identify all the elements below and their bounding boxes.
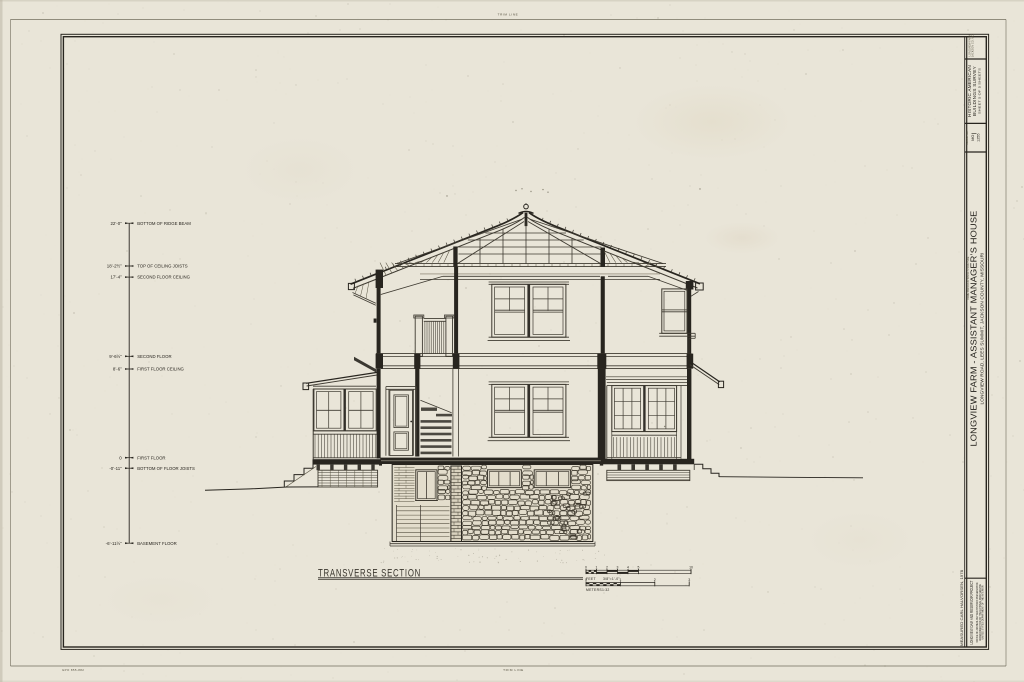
svg-text:BUILDINGS SURVEY: BUILDINGS SURVEY bbox=[972, 66, 977, 116]
svg-text:UNITED STATES DEPARTMENT OF TH: UNITED STATES DEPARTMENT OF THE INTERIOR bbox=[982, 585, 985, 639]
svg-text:TRIM LINE: TRIM LINE bbox=[503, 668, 524, 672]
svg-text:8’-6”: 8’-6” bbox=[113, 367, 122, 372]
svg-text:1255: 1255 bbox=[976, 133, 980, 141]
svg-text:1: 1 bbox=[619, 578, 621, 582]
svg-text:2: 2 bbox=[606, 565, 608, 569]
svg-text:LONGVIEW ROAD, LEES SUMMIT, JA: LONGVIEW ROAD, LEES SUMMIT, JACKSON COUN… bbox=[979, 253, 984, 405]
svg-text:3: 3 bbox=[617, 565, 619, 569]
svg-text:SECOND FLOOR CEILING: SECOND FLOOR CEILING bbox=[137, 275, 190, 280]
svg-text:BOTTOM OF RIDGE BEAM: BOTTOM OF RIDGE BEAM bbox=[137, 221, 191, 226]
svg-text:FIRST FLOOR CEILING: FIRST FLOOR CEILING bbox=[137, 367, 184, 372]
svg-text:10: 10 bbox=[689, 565, 693, 569]
svg-text:SHEET 5 OF 5 SHEETS: SHEET 5 OF 5 SHEETS bbox=[978, 68, 982, 114]
svg-text:LONGVIEW FARM - ASSISTANT MANA: LONGVIEW FARM - ASSISTANT MANAGER’S HOUS… bbox=[969, 210, 979, 446]
svg-text:18’-2½”: 18’-2½” bbox=[107, 264, 122, 269]
svg-text:1:32: 1:32 bbox=[602, 588, 609, 592]
svg-text:0: 0 bbox=[585, 565, 587, 569]
svg-text:-0’-11”: -0’-11” bbox=[109, 466, 122, 471]
svg-text:BASEMENT FLOOR: BASEMENT FLOOR bbox=[137, 541, 177, 546]
svg-text:METERS: METERS bbox=[586, 588, 602, 592]
svg-text:4: 4 bbox=[627, 565, 629, 569]
svg-text:JACKSON CO. MO.: JACKSON CO. MO. bbox=[971, 34, 975, 57]
svg-text:UNDER DIRECTION OF THE NATIONA: UNDER DIRECTION OF THE NATIONAL PARK SER… bbox=[979, 584, 982, 641]
svg-text:9’-6½”: 9’-6½” bbox=[109, 354, 122, 359]
svg-text:MO: MO bbox=[971, 135, 975, 141]
svg-text:GPO 855-882: GPO 855-882 bbox=[62, 668, 84, 672]
svg-text:0: 0 bbox=[585, 578, 587, 582]
svg-text:FIRST FLOOR: FIRST FLOOR bbox=[137, 455, 165, 460]
svg-text:5: 5 bbox=[638, 565, 640, 569]
svg-text:LONGVIEW DAM AND RESERVOIR PRO: LONGVIEW DAM AND RESERVOIR PROJECT bbox=[969, 580, 974, 644]
svg-text:3: 3 bbox=[688, 578, 690, 582]
svg-text:TOP OF CEILING JOISTS: TOP OF CEILING JOISTS bbox=[137, 264, 188, 269]
svg-text:2: 2 bbox=[654, 578, 656, 582]
svg-text:SECOND FLOOR: SECOND FLOOR bbox=[137, 354, 171, 359]
svg-text:SURVEY NO.: SURVEY NO. bbox=[967, 130, 969, 144]
svg-text:-6’-11½”: -6’-11½” bbox=[106, 541, 123, 546]
svg-text:FEET: FEET bbox=[586, 577, 596, 581]
svg-text:OFFICE OF ARCHEOLOGY AND HISTO: OFFICE OF ARCHEOLOGY AND HISTORIC PRESER… bbox=[976, 582, 979, 642]
svg-text:3/8”=1’-0”: 3/8”=1’-0” bbox=[603, 577, 620, 581]
svg-text:17’-4”: 17’-4” bbox=[110, 275, 122, 280]
svg-text:TRIM LINE: TRIM LINE bbox=[498, 13, 519, 17]
svg-text:MEASURED CARL HALVORSEN, 19: MEASURED CARL HALVORSEN, 1978 bbox=[960, 570, 964, 646]
svg-text:BOTTOM OF FLOOR JOISTS: BOTTOM OF FLOOR JOISTS bbox=[137, 466, 195, 471]
svg-text:1: 1 bbox=[596, 565, 598, 569]
svg-text:22’-0”: 22’-0” bbox=[110, 221, 122, 226]
